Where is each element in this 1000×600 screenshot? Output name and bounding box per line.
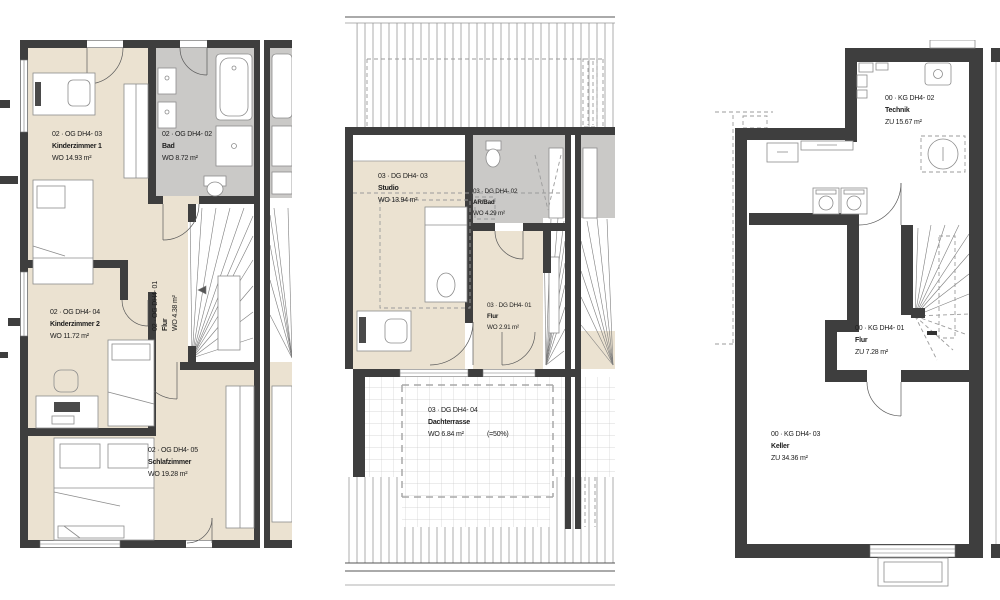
svg-text:00 · KG DH4- 02: 00 · KG DH4- 02 — [885, 95, 934, 102]
svg-text:WO 8.72 m²: WO 8.72 m² — [162, 155, 199, 162]
svg-text:Keller: Keller — [771, 443, 790, 450]
wall-stub — [8, 318, 20, 326]
svg-text:Flur: Flur — [487, 313, 499, 320]
svg-text:WO 13.94 m²: WO 13.94 m² — [378, 197, 418, 204]
svg-text:Schlafzimmer: Schlafzimmer — [148, 459, 192, 466]
wall-stub — [0, 352, 8, 358]
svg-text:WO 11.72 m²: WO 11.72 m² — [50, 333, 90, 340]
room-name: Kinderzimmer 1 — [52, 143, 102, 150]
floor-plan-dg: 03 · DG DH4- 03 Studio WO 13.94 m² 03 · … — [345, 15, 615, 595]
walls-kg — [735, 48, 1000, 558]
floor-plan-kg: 00 · KG DH4- 02 Technik ZU 15.67 m² 00 ·… — [715, 40, 1000, 595]
svg-text:Technik: Technik — [885, 107, 910, 114]
wall-stub — [0, 176, 18, 184]
svg-text:02 · OG DH4- 04: 02 · OG DH4- 04 — [50, 309, 100, 316]
svg-text:ZU 7.28 m²: ZU 7.28 m² — [855, 349, 889, 356]
svg-text:03 · DG DH4- 02: 03 · DG DH4- 02 — [473, 188, 518, 195]
svg-text:Studio: Studio — [378, 185, 399, 192]
area-note: (=50%) — [487, 431, 509, 438]
roof-hatch-top — [345, 17, 615, 127]
svg-text:Dachterrasse: Dachterrasse — [428, 419, 470, 426]
staircase-kg — [911, 225, 969, 360]
svg-text:WO 6.84 m²: WO 6.84 m² — [428, 431, 465, 438]
svg-text:Kinderzimmer 2: Kinderzimmer 2 — [50, 321, 100, 328]
windows-dg — [400, 370, 535, 377]
svg-text:03 · DG DH4- 03: 03 · DG DH4- 03 — [378, 173, 428, 180]
svg-text:Flur: Flur — [162, 318, 169, 331]
svg-text:02 · OG DH4- 02: 02 · OG DH4- 02 — [162, 131, 212, 138]
room-area: WO 14.93 m² — [52, 155, 92, 162]
svg-text:WO 4.38 m²: WO 4.38 m² — [172, 294, 179, 331]
svg-text:03 · DG DH4- 01: 03 · DG DH4- 01 — [487, 302, 532, 309]
wall-stub — [0, 100, 10, 108]
svg-text:Bad: Bad — [162, 143, 175, 150]
room-code: 02 · OG DH4- 03 — [52, 131, 102, 138]
svg-text:WO 2.91 m²: WO 2.91 m² — [487, 324, 519, 331]
svg-text:Flur: Flur — [855, 337, 868, 344]
svg-text:ZU 15.67 m²: ZU 15.67 m² — [885, 119, 923, 126]
svg-text:03 · DG DH4- 04: 03 · DG DH4- 04 — [428, 407, 478, 414]
dachterrasse-area — [345, 377, 615, 585]
svg-text:02 · OG DH4- 05: 02 · OG DH4- 05 — [148, 447, 198, 454]
svg-text:00 · KG DH4- 03: 00 · KG DH4- 03 — [771, 431, 820, 438]
svg-text:WO 19.28 m²: WO 19.28 m² — [148, 471, 188, 478]
floor-plan-og: 02 · OG DH4- 03 Kinderzimmer 1 WO 14.93 … — [20, 40, 292, 561]
svg-text:AR/Bad: AR/Bad — [473, 199, 495, 206]
svg-text:02 · OG DH4- 01: 02 · OG DH4- 01 — [152, 281, 159, 331]
svg-text:ZU 34.36 m²: ZU 34.36 m² — [771, 455, 809, 462]
svg-text:00 · KG DH4- 01: 00 · KG DH4- 01 — [855, 325, 904, 332]
svg-text:WO 4.29 m²: WO 4.29 m² — [473, 210, 505, 217]
furniture-arbad — [486, 141, 501, 167]
